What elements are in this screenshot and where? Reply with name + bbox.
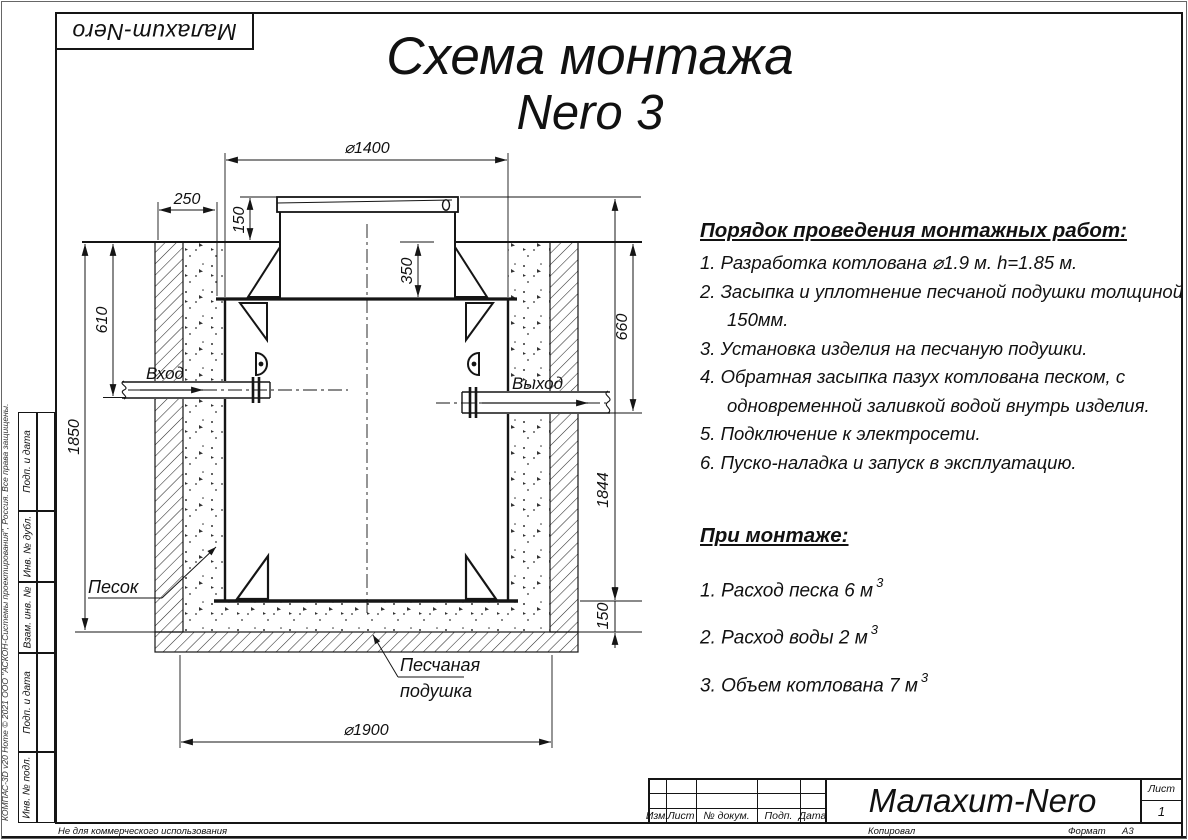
stamp-cell-podp-data-1: Подп. и дата xyxy=(18,412,37,511)
stamp-cell-inv-podl: Инв. № подл. xyxy=(18,752,37,823)
titleblock-sheet-label: Лист xyxy=(1140,779,1183,799)
stamp-cell-empty xyxy=(37,582,55,653)
tb-col-docnum: № докум. xyxy=(696,808,757,823)
stamp-cell-inv-dubl: Инв. № дубл. xyxy=(18,511,37,582)
stamp-cell-empty xyxy=(37,752,55,823)
tb-col-podp: Подп. xyxy=(757,808,800,823)
superscript: 3 xyxy=(871,622,878,637)
dim-150-bottom: 150 xyxy=(595,603,612,630)
instruction-item: 6. Пуско-наладка и запуск в эксплуатацию… xyxy=(700,449,1184,478)
pipe-fittings xyxy=(256,353,479,375)
inlet-label: Вход xyxy=(146,364,184,383)
stamp-cell-empty xyxy=(37,511,55,582)
instruction-item: 5. Подключение к электросети. xyxy=(700,420,1184,449)
outlet-label: Выход xyxy=(512,374,563,393)
cushion-label-line1: Песчаная xyxy=(400,655,480,675)
instruction-item: 3. Установка изделия на песчаную подушки… xyxy=(700,335,1184,364)
sand-label: Песок xyxy=(88,577,140,597)
format-label: Формат xyxy=(1068,824,1106,838)
dim-660: 660 xyxy=(614,314,631,341)
cushion-label-line2: подушка xyxy=(400,681,472,701)
tb-col-izm: Изм. xyxy=(648,808,666,823)
stamp-cell-empty xyxy=(37,412,55,511)
titleblock-sheet-number: 1 xyxy=(1140,801,1183,822)
instruction-item: 2. Засыпка и уплотнение песчаной подушки… xyxy=(700,278,1184,335)
superscript: 3 xyxy=(921,670,928,685)
dim-150-top: 150 xyxy=(231,207,248,234)
installation-instructions: Порядок проведения монтажных работ: 1. Р… xyxy=(700,219,1184,477)
format-value: А3 xyxy=(1122,824,1134,838)
kopiroval-label: Копировал xyxy=(868,824,915,838)
dim-610: 610 xyxy=(94,307,111,334)
instructions-heading: Порядок проведения монтажных работ: xyxy=(700,219,1184,243)
montage-item: 1. Расход песка 6 м3 xyxy=(700,564,1184,611)
stamp-cell-empty xyxy=(37,653,55,752)
montage-item: 3. Объем котлована 7 м3 xyxy=(700,659,1184,706)
montage-heading: При монтаже: xyxy=(700,524,1184,548)
dim-1850: 1850 xyxy=(66,419,83,455)
non-commercial-note: Не для коммерческого использования xyxy=(58,824,227,838)
titleblock-product-name: Малахит-Nero xyxy=(825,778,1140,823)
drawing-sheet: { "logo": { "text": "Малахит-Nero" }, "t… xyxy=(0,0,1188,840)
superscript: 3 xyxy=(876,575,883,590)
dim-1400: ⌀1400 xyxy=(344,140,389,157)
kompas-copyright: КОМПАС-3D v20 Home © 2021 ООО "АСКОН-Сис… xyxy=(0,385,12,821)
montage-item: 2. Расход воды 2 м3 xyxy=(700,611,1184,658)
titleblock-row-line xyxy=(648,793,825,794)
instruction-item: 1. Разработка котлована ⌀1.9 м. h=1.85 м… xyxy=(700,249,1184,278)
montage-notes: При монтаже: 1. Расход песка 6 м3 2. Рас… xyxy=(700,524,1184,706)
stamp-cell-podp-data-2: Подп. и дата xyxy=(18,653,37,752)
dim-1844: 1844 xyxy=(595,472,612,508)
instruction-item: 4. Обратная засыпка пазух котлована песк… xyxy=(700,363,1184,420)
stamp-cell-vzam-inv: Взам. инв. № xyxy=(18,582,37,653)
tb-col-data: Дата xyxy=(800,808,825,823)
dim-350: 350 xyxy=(399,258,416,285)
dim-1900: ⌀1900 xyxy=(343,722,388,739)
dim-250: 250 xyxy=(173,191,201,208)
tb-col-list: Лист xyxy=(666,808,696,823)
